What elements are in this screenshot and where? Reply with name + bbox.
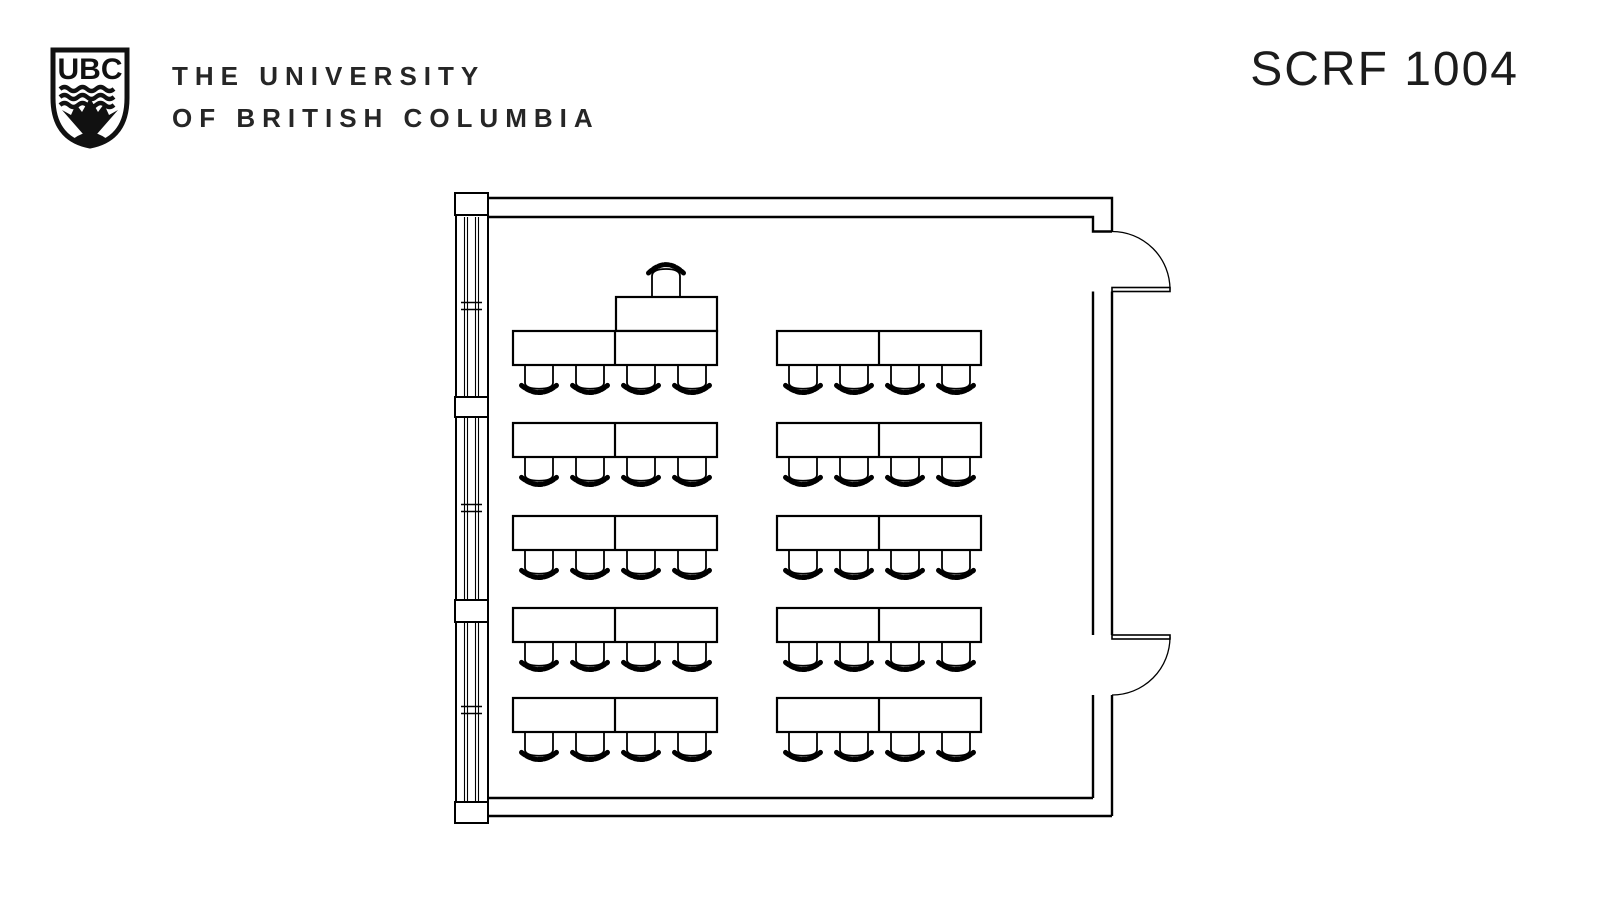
window-wall [455, 193, 488, 823]
floorplan-svg [440, 180, 1190, 850]
chair [786, 365, 821, 393]
chair [939, 365, 974, 393]
door-top [1112, 232, 1170, 292]
door-top-leaf [1112, 288, 1170, 292]
door-bottom [1112, 635, 1170, 695]
university-wordmark: THE UNIVERSITY OF BRITISH COLUMBIA [172, 55, 600, 139]
table-group-row2-col2 [777, 423, 981, 485]
chair [624, 365, 659, 393]
chair [573, 365, 608, 393]
window-post [455, 600, 488, 622]
table-group-row4-col1 [513, 608, 717, 670]
furniture-layer [513, 265, 981, 760]
chair [837, 642, 872, 670]
window-post [455, 397, 488, 417]
chair [573, 550, 608, 578]
university-wordmark-line1: THE UNIVERSITY [172, 55, 600, 97]
chair [675, 365, 710, 393]
chair [573, 732, 608, 760]
instructor-chair [649, 265, 684, 297]
university-wordmark-line2: OF BRITISH COLUMBIA [172, 97, 600, 139]
chair [573, 457, 608, 485]
chair [939, 550, 974, 578]
room-code: SCRF 1004 [1250, 42, 1519, 97]
chair [837, 365, 872, 393]
chair [624, 457, 659, 485]
chair [888, 550, 923, 578]
chair [675, 457, 710, 485]
chair [522, 642, 557, 670]
crest-wave-1 [60, 87, 114, 91]
chair [837, 732, 872, 760]
window-glazing [465, 217, 479, 802]
table-group-row5-col1 [513, 698, 717, 760]
chair [786, 550, 821, 578]
crest-logo-text: UBC [58, 53, 123, 86]
right-wall [1093, 292, 1112, 817]
chair [837, 550, 872, 578]
chair [675, 550, 710, 578]
chair [786, 732, 821, 760]
door-top-swing-arc [1112, 232, 1170, 290]
chair [624, 732, 659, 760]
chair [786, 457, 821, 485]
chair [939, 642, 974, 670]
floorplan-page: UBC THE UNIVERSITY OF BRITISH COLUMBIA S… [0, 0, 1601, 901]
ubc-logo: UBC [49, 46, 131, 149]
chair [939, 732, 974, 760]
chair [888, 642, 923, 670]
instructor-table [616, 297, 717, 331]
table-group-row1-col1 [513, 331, 717, 393]
window-wall-faces [456, 193, 488, 823]
table-group-row3-col1 [513, 516, 717, 578]
chair [888, 457, 923, 485]
table-group-row5-col2 [777, 698, 981, 760]
chair [837, 457, 872, 485]
table-group-row3-col2 [777, 516, 981, 578]
door-bottom-swing-arc [1112, 637, 1170, 695]
chair [624, 550, 659, 578]
door-bottom-leaf [1112, 635, 1170, 639]
chair [786, 642, 821, 670]
chair [939, 457, 974, 485]
chair [624, 642, 659, 670]
chair [675, 732, 710, 760]
instructor-station [616, 265, 717, 331]
chair [522, 457, 557, 485]
window-post [455, 193, 488, 215]
table-group-row4-col2 [777, 608, 981, 670]
bottom-wall [488, 798, 1112, 816]
table-group-row2-col1 [513, 423, 717, 485]
top-wall [488, 198, 1112, 232]
window-post [455, 802, 488, 823]
table-group-row1-col2 [777, 331, 981, 393]
chair [522, 732, 557, 760]
chair [888, 732, 923, 760]
chair [573, 642, 608, 670]
chair [522, 365, 557, 393]
crest-sun-base [73, 133, 107, 145]
chair [522, 550, 557, 578]
chair [675, 642, 710, 670]
chair [888, 365, 923, 393]
crest-wave-2 [60, 95, 114, 99]
